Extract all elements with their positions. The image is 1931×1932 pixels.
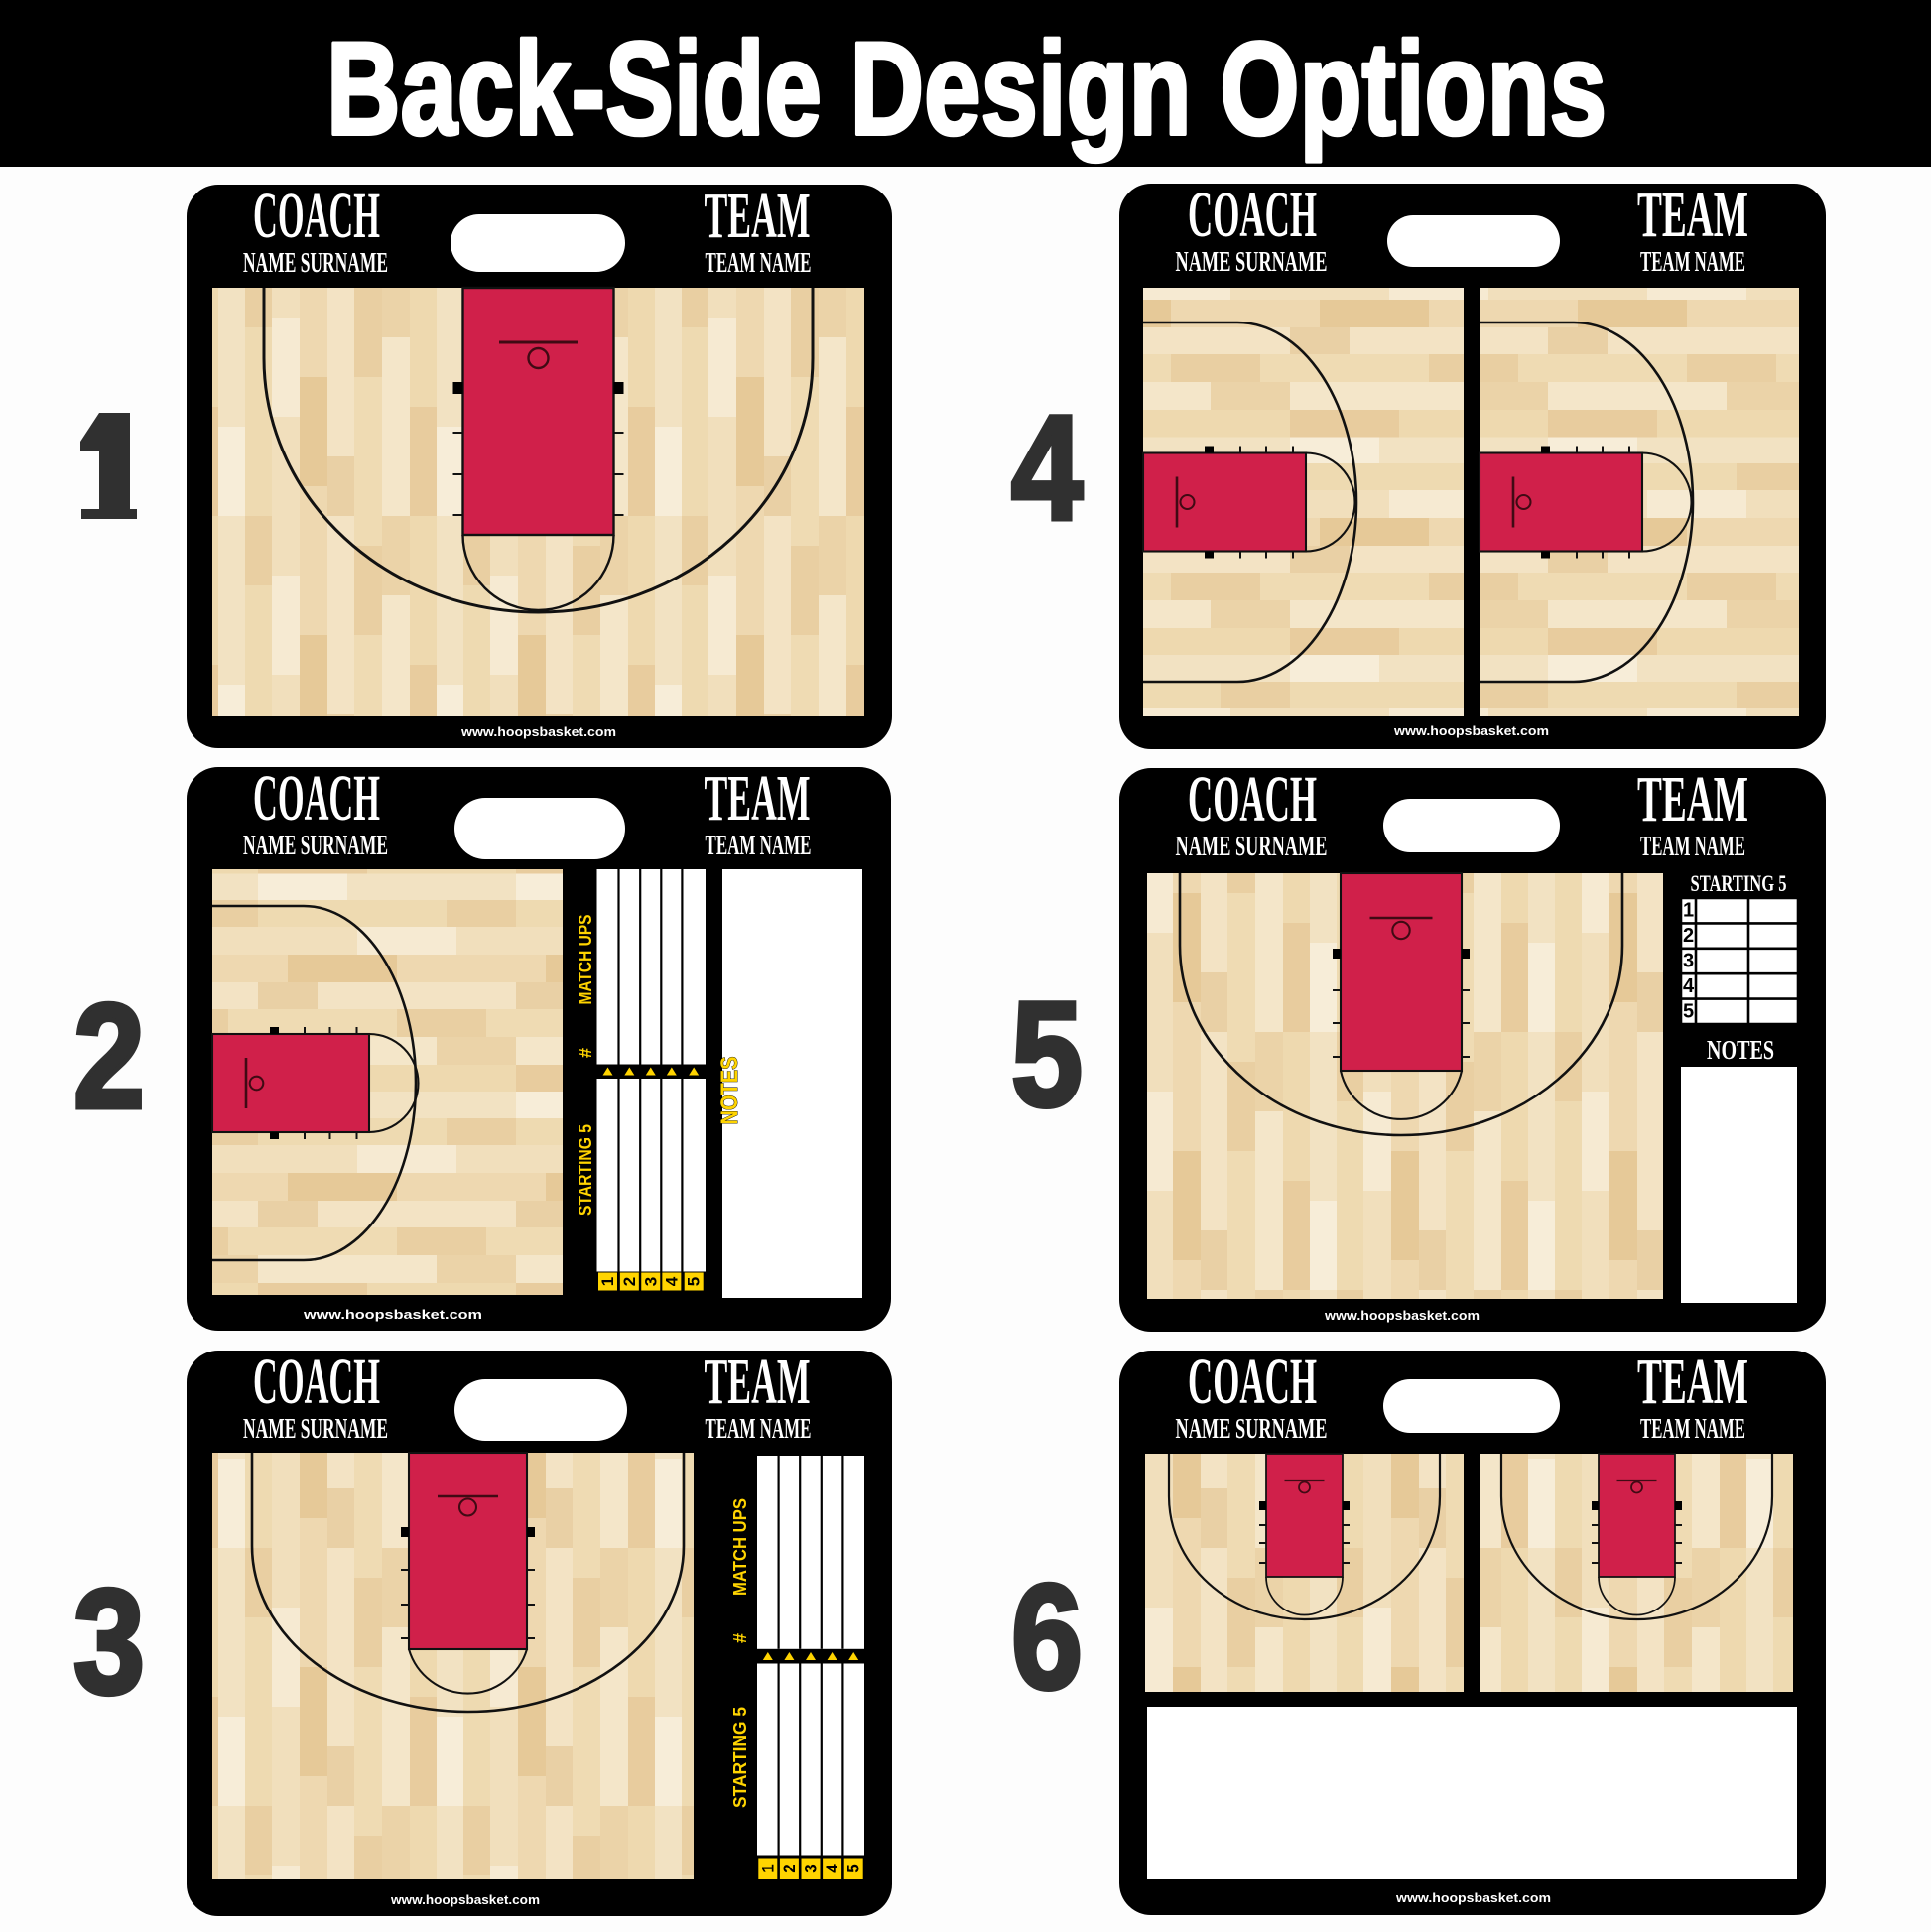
svg-text:TEAM: TEAM — [1637, 1346, 1748, 1418]
svg-text:4: 4 — [662, 1276, 681, 1286]
svg-text:5: 5 — [685, 1277, 704, 1286]
svg-text:TEAM: TEAM — [705, 1346, 811, 1418]
svg-text:COACH: COACH — [1188, 1346, 1317, 1418]
svg-text:COACH: COACH — [253, 1346, 380, 1418]
svg-text:1: 1 — [1683, 900, 1694, 922]
svg-text:1: 1 — [758, 1864, 777, 1872]
svg-text:STARTING 5: STARTING 5 — [576, 1124, 595, 1216]
svg-text:4: 4 — [1683, 975, 1695, 997]
svg-text:www.hoopsbasket.com: www.hoopsbasket.com — [1393, 723, 1549, 738]
svg-text:COACH: COACH — [1188, 763, 1317, 836]
svg-text:5: 5 — [1011, 970, 1083, 1137]
svg-text:MATCH UPS: MATCH UPS — [576, 915, 595, 1005]
svg-text:NAME SURNAME: NAME SURNAME — [1176, 1413, 1328, 1445]
svg-text:NAME SURNAME: NAME SURNAME — [243, 830, 388, 861]
svg-text:TEAM NAME: TEAM NAME — [706, 1413, 812, 1445]
svg-text:STARTING 5: STARTING 5 — [1691, 871, 1787, 896]
svg-text:TEAM: TEAM — [1637, 179, 1748, 251]
svg-text:COACH: COACH — [253, 762, 380, 835]
svg-text:www.hoopsbasket.com: www.hoopsbasket.com — [460, 724, 616, 739]
svg-text:STARTING 5: STARTING 5 — [730, 1707, 750, 1808]
svg-text:2: 2 — [1683, 925, 1694, 947]
svg-text:3: 3 — [1683, 951, 1694, 972]
svg-text:TEAM NAME: TEAM NAME — [1640, 1413, 1745, 1445]
svg-text:2: 2 — [780, 1864, 799, 1872]
svg-text:TEAM NAME: TEAM NAME — [1640, 831, 1745, 862]
svg-text:NOTES: NOTES — [716, 1057, 743, 1125]
svg-text:TEAM: TEAM — [705, 180, 811, 252]
svg-text:3: 3 — [641, 1277, 660, 1286]
svg-text:www.hoopsbasket.com: www.hoopsbasket.com — [1324, 1308, 1480, 1323]
svg-text:#: # — [730, 1633, 750, 1643]
svg-text:TEAM NAME: TEAM NAME — [706, 247, 812, 279]
svg-text:NAME SURNAME: NAME SURNAME — [243, 247, 388, 279]
svg-text:#: # — [576, 1048, 595, 1058]
svg-text:3: 3 — [802, 1864, 821, 1872]
svg-text:COACH: COACH — [1188, 179, 1317, 251]
svg-text:6: 6 — [1011, 1553, 1083, 1720]
svg-text:4: 4 — [823, 1864, 841, 1873]
svg-text:3: 3 — [73, 1558, 145, 1725]
svg-text:COACH: COACH — [253, 180, 380, 252]
svg-text:TEAM: TEAM — [705, 762, 811, 835]
svg-text:TEAM: TEAM — [1637, 763, 1748, 836]
svg-text:NOTES: NOTES — [1707, 1035, 1774, 1065]
svg-text:www.hoopsbasket.com: www.hoopsbasket.com — [303, 1307, 482, 1322]
svg-text:www.hoopsbasket.com: www.hoopsbasket.com — [1395, 1890, 1551, 1905]
svg-text:5: 5 — [844, 1864, 863, 1872]
svg-text:2: 2 — [73, 972, 145, 1139]
svg-text:MATCH UPS: MATCH UPS — [730, 1498, 750, 1596]
svg-text:www.hoopsbasket.com: www.hoopsbasket.com — [390, 1892, 540, 1907]
svg-text:NAME SURNAME: NAME SURNAME — [243, 1413, 388, 1445]
svg-text:2: 2 — [620, 1277, 639, 1286]
svg-text:NAME SURNAME: NAME SURNAME — [1176, 246, 1328, 278]
svg-text:TEAM NAME: TEAM NAME — [1640, 246, 1745, 278]
svg-text:TEAM NAME: TEAM NAME — [706, 830, 812, 861]
svg-text:4: 4 — [1011, 384, 1083, 551]
svg-text:Back-Side Design Options: Back-Side Design Options — [326, 16, 1607, 163]
svg-text:NAME SURNAME: NAME SURNAME — [1176, 831, 1328, 862]
svg-text:1: 1 — [598, 1277, 617, 1286]
svg-text:5: 5 — [1683, 1000, 1694, 1022]
